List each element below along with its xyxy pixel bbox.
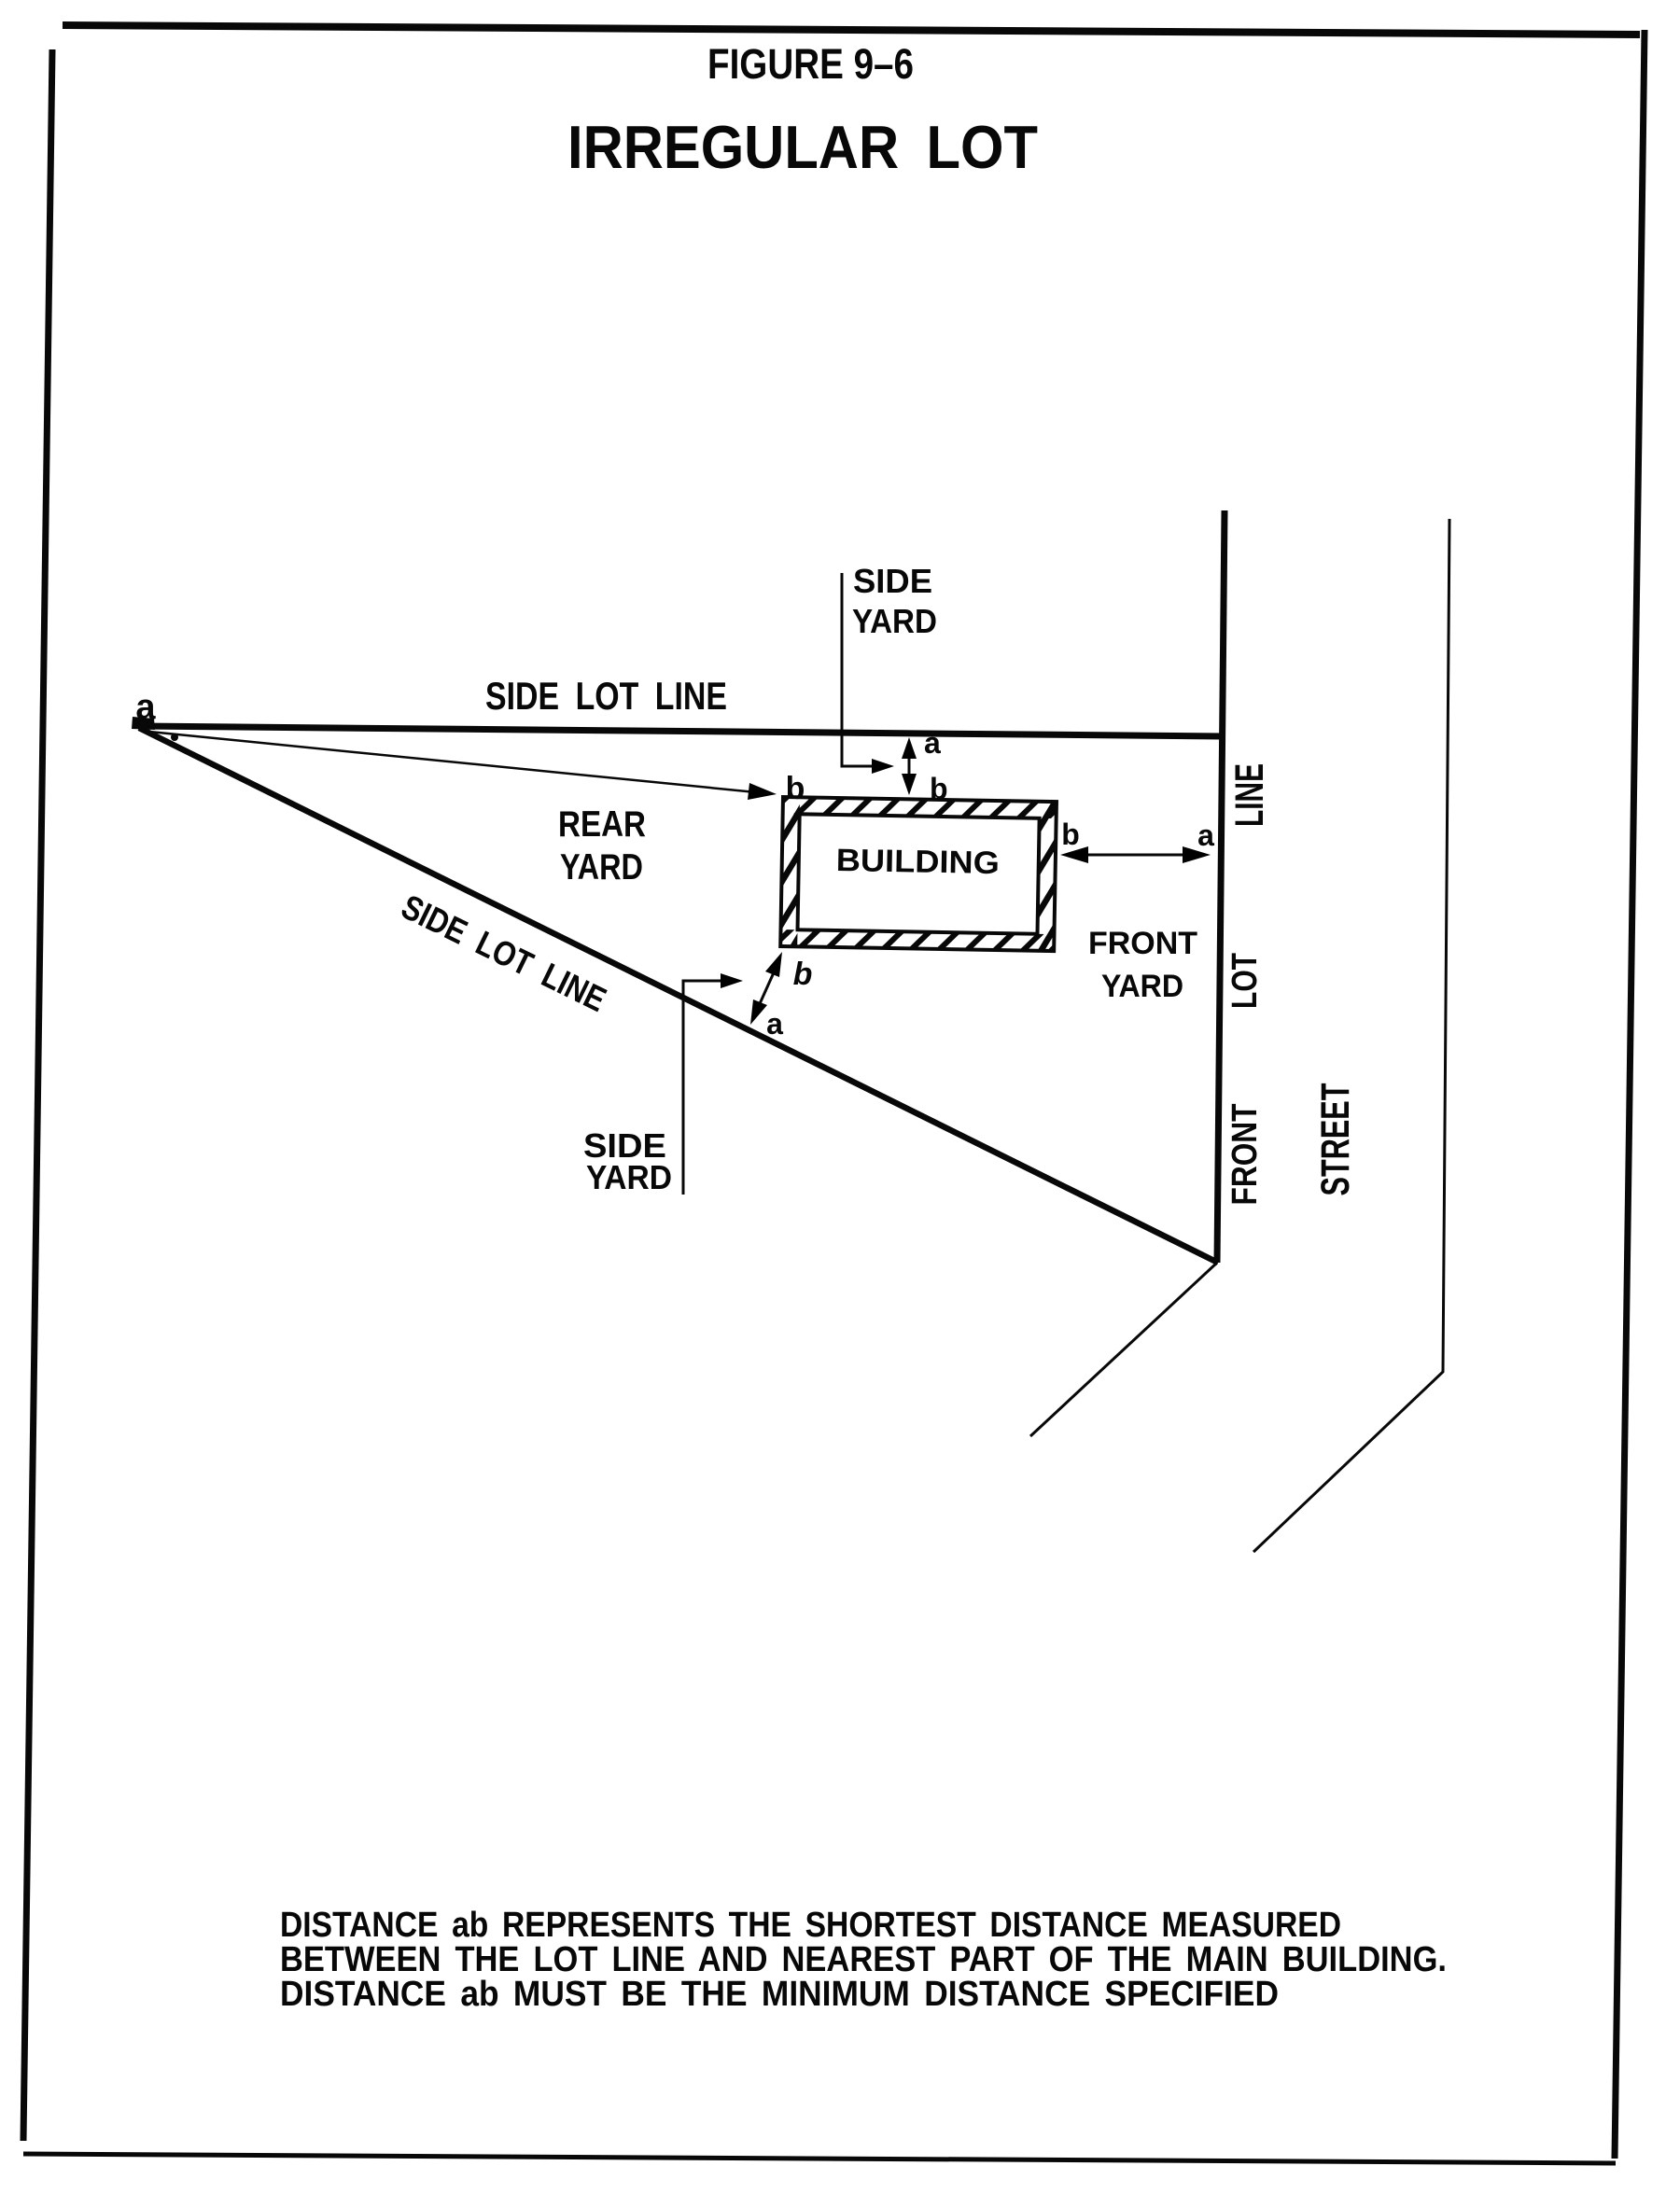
svg-text:BETWEEN THE LOT LINE AND NEARE: BETWEEN THE LOT LINE AND NEAREST PART OF… <box>280 1940 1447 1979</box>
svg-text:a: a <box>766 1007 783 1041</box>
svg-text:a: a <box>1197 818 1214 852</box>
svg-text:FRONT: FRONT <box>1225 1104 1265 1206</box>
svg-text:LOT: LOT <box>1225 953 1265 1009</box>
svg-text:REAR: REAR <box>558 804 646 845</box>
svg-text:YARD: YARD <box>560 847 643 887</box>
svg-text:a: a <box>924 726 941 760</box>
svg-text:b: b <box>1061 818 1080 851</box>
svg-text:IRREGULAR LOT: IRREGULAR LOT <box>567 113 1038 181</box>
svg-text:SIDE: SIDE <box>853 562 932 600</box>
svg-text:YARD: YARD <box>1101 969 1183 1004</box>
svg-text:STREET: STREET <box>1313 1083 1358 1196</box>
svg-text:BUILDING: BUILDING <box>835 843 1000 881</box>
svg-text:YARD: YARD <box>852 602 937 640</box>
svg-text:FIGURE 9–6: FIGURE 9–6 <box>707 40 914 88</box>
svg-text:DISTANCE ab MUST BE THE MINIMU: DISTANCE ab MUST BE THE MINIMUM DISTANCE… <box>280 1975 1279 2014</box>
svg-text:SIDE LOT LINE: SIDE LOT LINE <box>485 674 727 718</box>
svg-text:YARD: YARD <box>586 1158 672 1196</box>
svg-text:LINE: LINE <box>1227 763 1272 827</box>
svg-text:DISTANCE ab REPRESENTS THE SHO: DISTANCE ab REPRESENTS THE SHORTEST DIST… <box>280 1906 1341 1945</box>
svg-text:FRONT: FRONT <box>1088 926 1197 961</box>
svg-text:b: b <box>793 957 813 992</box>
